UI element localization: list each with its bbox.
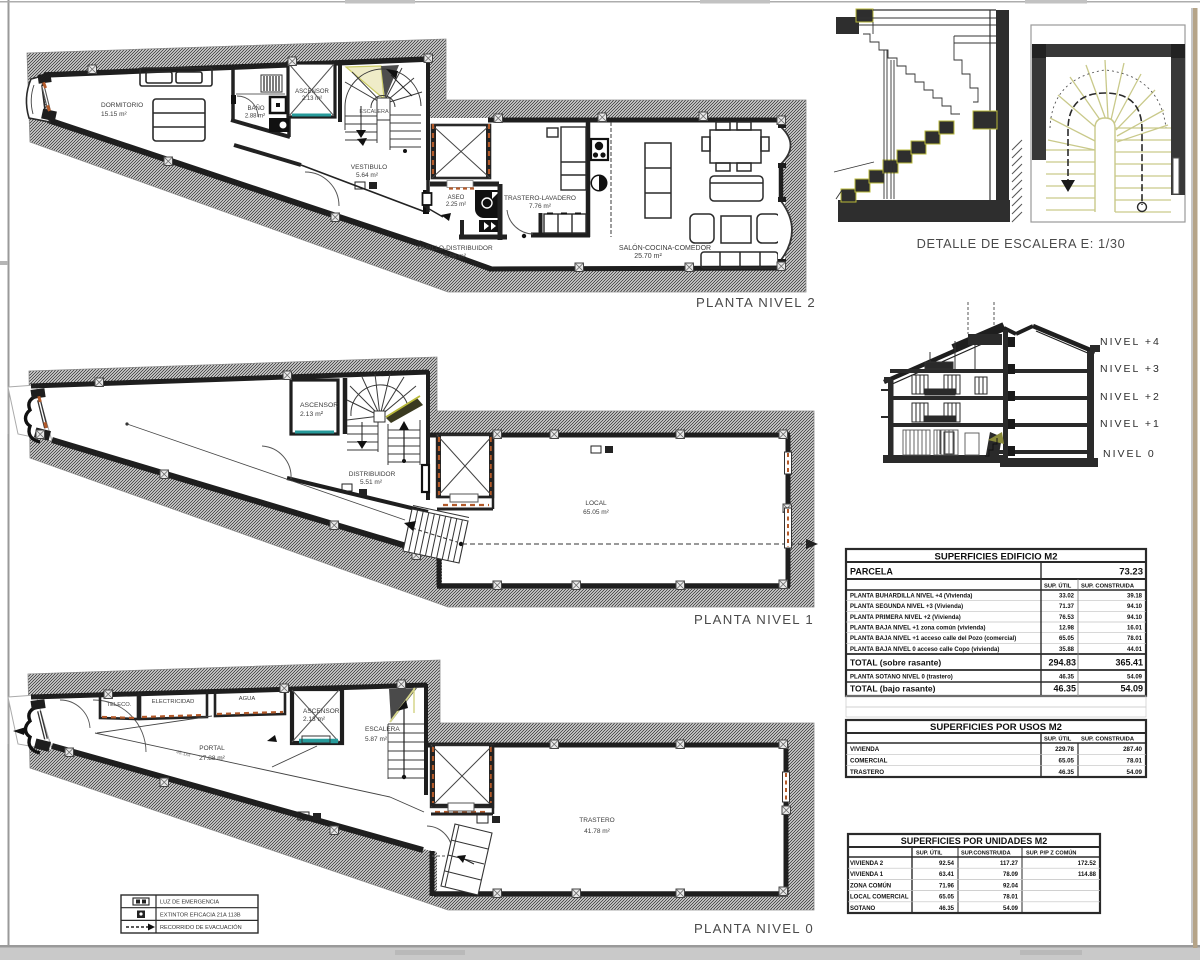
svg-text:73.23: 73.23 [1119,567,1143,578]
svg-text:SALÓN-COCINA-COMEDOR: SALÓN-COCINA-COMEDOR [619,243,711,252]
svg-text:ZONA COMÚN: ZONA COMÚN [850,882,891,889]
svg-text:TOTAL (sobre rasante): TOTAL (sobre rasante) [850,658,941,668]
svg-text:SUP.CONSTRUIDA: SUP.CONSTRUIDA [961,851,1011,857]
svg-text:16.01: 16.01 [1127,626,1143,632]
svg-text:2.88 m²: 2.88 m² [245,114,265,120]
svg-text:BAÑO: BAÑO [247,105,264,112]
svg-text:114.88: 114.88 [1078,872,1097,878]
svg-text:76.53: 76.53 [1059,615,1075,621]
svg-text:ELECTRICIDAD: ELECTRICIDAD [152,699,195,705]
svg-text:5.64 m²: 5.64 m² [356,172,379,179]
svg-text:SOTANO: SOTANO [850,906,876,912]
svg-text:PLANTA NIVEL 0: PLANTA NIVEL 0 [694,921,814,936]
svg-text:TELECO.: TELECO. [107,702,132,708]
svg-text:46.35: 46.35 [939,906,955,912]
svg-text:229.78: 229.78 [1055,746,1074,753]
svg-text:SUPERFICIES EDIFICIO M2: SUPERFICIES EDIFICIO M2 [935,552,1058,563]
svg-text:92.04: 92.04 [1003,883,1019,889]
svg-text:PLANTA BAJA NIVEL +1 acceso c: PLANTA BAJA NIVEL +1 acceso calle del Po… [850,636,1016,642]
svg-text:DETALLE DE ESCALERA E: 1/30: DETALLE DE ESCALERA E: 1/30 [917,236,1126,251]
svg-text:78.01: 78.01 [1003,895,1019,901]
svg-text:65.05: 65.05 [1059,636,1075,642]
svg-text:39.18: 39.18 [1127,594,1143,600]
svg-text:SUP. CONSTRUIDA: SUP. CONSTRUIDA [1081,584,1135,590]
svg-text:PORTAL: PORTAL [199,745,225,752]
svg-text:NIVEL +2: NIVEL +2 [1100,391,1161,403]
svg-text:SUP. P/P Z COMÚN: SUP. P/P Z COMÚN [1026,850,1076,857]
svg-text:5.87 m²: 5.87 m² [365,736,388,743]
svg-text:41.78 m²: 41.78 m² [584,828,610,835]
svg-text:PARCELA: PARCELA [850,567,893,577]
svg-text:78.09: 78.09 [1003,872,1019,878]
svg-text:PLANTA NIVEL 1: PLANTA NIVEL 1 [694,612,814,627]
svg-text:ASCENSOR: ASCENSOR [300,402,338,409]
svg-text:65.05: 65.05 [1059,757,1075,764]
svg-text:EXTINTOR EFICACIA 21A 113B: EXTINTOR EFICACIA 21A 113B [160,912,241,918]
svg-text:2.13 m²: 2.13 m² [302,96,322,102]
svg-text:SUP. ÚTIL: SUP. ÚTIL [1044,583,1072,590]
svg-text:5.51 m²: 5.51 m² [360,479,383,486]
svg-text:7.76 m²: 7.76 m² [529,203,552,210]
svg-text:71.37: 71.37 [1059,604,1075,610]
svg-text:PLANTA PRIMERA NIVEL +2 (Vivie: PLANTA PRIMERA NIVEL +2 (Vivienda) [850,615,961,621]
svg-text:PASILLO-DISTRIBUIDOR: PASILLO-DISTRIBUIDOR [417,245,493,252]
svg-text:94.10: 94.10 [1127,604,1143,610]
svg-text:PLANTA BAJA NIVEL 0 acceso cal: PLANTA BAJA NIVEL 0 acceso calle Copo (v… [850,647,999,653]
svg-text:DORMITORIO: DORMITORIO [101,102,143,109]
svg-text:78.01: 78.01 [1127,757,1143,764]
svg-text:54.09: 54.09 [1127,769,1143,776]
svg-text:AGUA: AGUA [239,696,256,702]
svg-text:LOCAL: LOCAL [585,500,607,507]
svg-text:VESTIBULO: VESTIBULO [351,164,387,171]
svg-text:NIVEL +3: NIVEL +3 [1100,363,1161,375]
svg-text:PLANTA SEGUNDA NIVEL +3 (Vivie: PLANTA SEGUNDA NIVEL +3 (Vivienda) [850,604,963,610]
svg-text:RECORRIDO DE EVACUACIÓN: RECORRIDO DE EVACUACIÓN [160,924,242,931]
svg-text:ESCALERA: ESCALERA [365,726,400,733]
svg-text:DISTRIBUIDOR: DISTRIBUIDOR [349,471,396,478]
svg-text:PLANTA BAJA NIVEL +1 zona com: PLANTA BAJA NIVEL +1 zona común (viviend… [850,626,986,632]
svg-text:46.35: 46.35 [1059,769,1075,776]
svg-text:ASCENSOR: ASCENSOR [295,89,329,95]
svg-text:63.41: 63.41 [939,872,955,878]
svg-text:SUP. ÚTIL: SUP. ÚTIL [916,850,943,857]
svg-text:54.09: 54.09 [1127,675,1143,681]
svg-text:172.52: 172.52 [1078,861,1097,867]
svg-text:NIVEL 0: NIVEL 0 [1103,448,1156,460]
svg-text:46.35: 46.35 [1059,675,1075,681]
svg-text:VIVIENDA 1: VIVIENDA 1 [850,872,884,878]
svg-text:65.05 m²: 65.05 m² [583,509,609,516]
svg-text:PLANTA BUHARDILLA NIVEL +4 (Vi: PLANTA BUHARDILLA NIVEL +4 (Vivienda) [850,594,972,600]
svg-text:VIVIENDA: VIVIENDA [850,746,880,753]
svg-text:15.15 m²: 15.15 m² [101,111,127,118]
svg-text:92.54: 92.54 [939,861,955,867]
svg-text:COMERCIAL: COMERCIAL [850,757,888,764]
svg-text:TRASTERO: TRASTERO [579,817,614,824]
svg-text:35.88: 35.88 [1059,647,1075,653]
svg-text:SUP. ÚTIL: SUP. ÚTIL [1044,736,1072,743]
svg-text:NIVEL +4: NIVEL +4 [1100,336,1161,348]
svg-text:SUPERFICIES POR USOS M2: SUPERFICIES POR USOS M2 [930,722,1062,733]
svg-text:12.98: 12.98 [1059,626,1075,632]
svg-text:VIVIENDA 2: VIVIENDA 2 [850,861,884,867]
svg-text:SUP. CONSTRUIDA: SUP. CONSTRUIDA [1081,737,1135,743]
svg-text:71.96: 71.96 [939,883,955,889]
svg-text:65.05: 65.05 [939,895,955,901]
svg-text:54.09: 54.09 [1003,906,1019,912]
svg-text:ASEO: ASEO [448,195,465,201]
svg-text:117.27: 117.27 [1000,861,1019,867]
svg-text:TRASTERO-LAVADERO: TRASTERO-LAVADERO [504,195,576,202]
svg-text:78.01: 78.01 [1127,636,1143,642]
svg-text:294.83: 294.83 [1048,658,1076,668]
svg-text:287.40: 287.40 [1123,746,1142,753]
svg-text:44.01: 44.01 [1127,647,1143,653]
svg-text:46.35: 46.35 [1053,684,1076,694]
svg-text:ESCALERA: ESCALERA [359,109,389,115]
svg-text:LUZ DE EMERGENCIA: LUZ DE EMERGENCIA [160,900,219,906]
svg-text:2.13 m²: 2.13 m² [303,716,326,723]
svg-text:94.10: 94.10 [1127,615,1143,621]
svg-text:PLANTA NIVEL 2: PLANTA NIVEL 2 [696,295,816,310]
svg-text:TOTAL (bajo rasante): TOTAL (bajo rasante) [850,684,936,694]
svg-text:2.25 m²: 2.25 m² [446,202,466,208]
svg-text:54.09: 54.09 [1120,684,1143,694]
svg-text:TRASTERO: TRASTERO [850,769,884,776]
svg-text:ASCENSOR: ASCENSOR [303,708,340,715]
svg-text:NIVEL +1: NIVEL +1 [1100,418,1161,430]
svg-text:365.41: 365.41 [1115,658,1143,668]
svg-text:33.02: 33.02 [1059,594,1075,600]
svg-text:9.66 m²: 9.66 m² [444,253,467,260]
svg-text:SUPERFICIES POR UNIDADES M2: SUPERFICIES POR UNIDADES M2 [901,836,1048,846]
svg-text:PLANTA SOTANO NIVEL 0 (traste: PLANTA SOTANO NIVEL 0 (trastero) [850,675,953,681]
svg-text:LOCAL COMERCIAL: LOCAL COMERCIAL [850,895,909,901]
svg-text:2.13 m²: 2.13 m² [300,411,324,418]
svg-text:25.70 m²: 25.70 m² [634,253,662,260]
